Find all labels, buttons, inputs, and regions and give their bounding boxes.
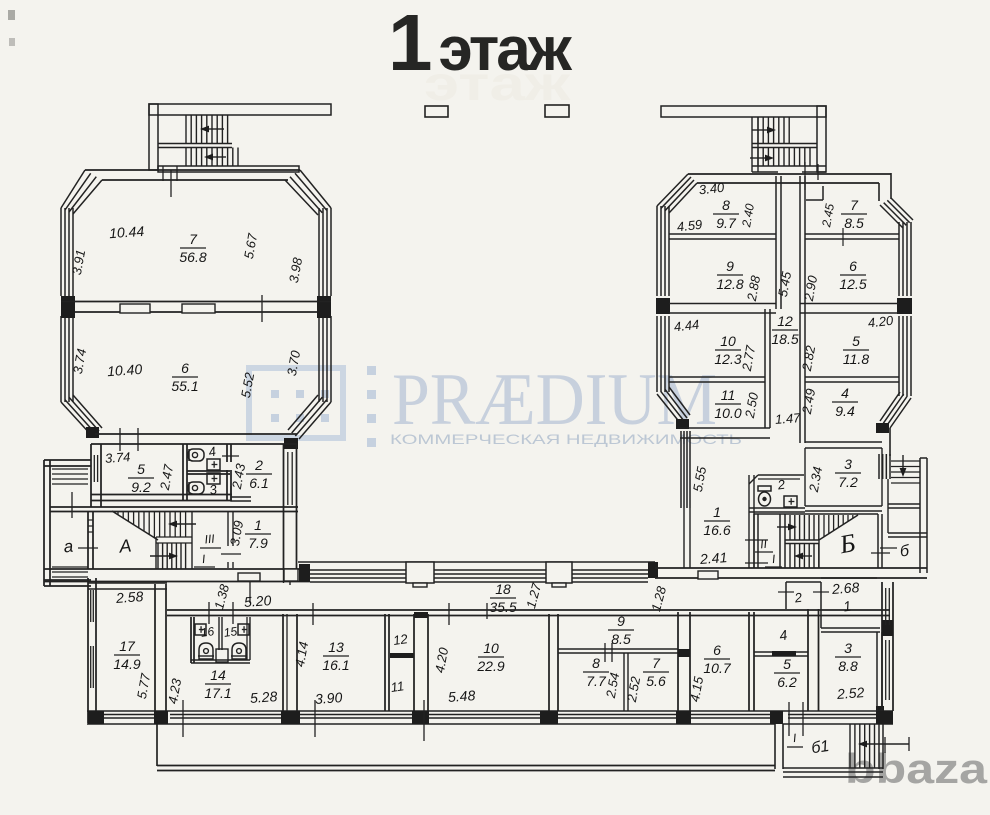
svg-text:1: 1 — [713, 504, 721, 520]
svg-text:4: 4 — [841, 385, 849, 401]
svg-text:1.47: 1.47 — [775, 410, 802, 427]
svg-text:16.6: 16.6 — [703, 522, 730, 538]
svg-text:10: 10 — [720, 333, 736, 349]
svg-text:35.5: 35.5 — [489, 599, 516, 615]
svg-text:55.1: 55.1 — [171, 378, 198, 394]
svg-text:10.7: 10.7 — [703, 660, 731, 676]
svg-text:13: 13 — [328, 639, 344, 655]
svg-text:8: 8 — [592, 655, 600, 671]
svg-text:1: 1 — [254, 517, 262, 533]
svg-text:2.68: 2.68 — [831, 579, 861, 597]
svg-text:6: 6 — [181, 360, 189, 376]
svg-text:18: 18 — [495, 581, 511, 597]
svg-text:7: 7 — [850, 197, 859, 213]
svg-text:12.3: 12.3 — [714, 351, 741, 367]
svg-text:12: 12 — [392, 631, 409, 648]
svg-text:56.8: 56.8 — [179, 249, 206, 265]
svg-text:4.44: 4.44 — [673, 317, 700, 335]
svg-text:9: 9 — [726, 258, 734, 274]
svg-text:8.5: 8.5 — [611, 631, 631, 647]
svg-text:12.5: 12.5 — [839, 276, 866, 292]
svg-text:6.1: 6.1 — [249, 475, 268, 491]
svg-text:9.4: 9.4 — [835, 403, 855, 419]
svg-text:3.74: 3.74 — [105, 449, 131, 466]
svg-text:7: 7 — [652, 655, 661, 671]
svg-text:11: 11 — [721, 387, 736, 403]
svg-text:9: 9 — [617, 613, 625, 629]
svg-text:3.90: 3.90 — [315, 689, 344, 707]
svg-text:2.52: 2.52 — [836, 684, 866, 702]
svg-text:11: 11 — [390, 678, 405, 695]
svg-text:16: 16 — [200, 624, 215, 640]
svg-text:22.9: 22.9 — [476, 658, 504, 674]
svg-text:А: А — [117, 535, 132, 556]
svg-text:5: 5 — [852, 333, 860, 349]
svg-text:16.1: 16.1 — [322, 657, 349, 673]
svg-text:5: 5 — [137, 461, 145, 477]
svg-text:17.1: 17.1 — [204, 685, 231, 701]
svg-text:2.58: 2.58 — [115, 588, 145, 606]
svg-text:7: 7 — [189, 231, 198, 247]
svg-text:8.8: 8.8 — [838, 658, 858, 674]
svg-text:14: 14 — [210, 667, 226, 683]
svg-text:10.0: 10.0 — [714, 405, 741, 421]
svg-text:2.41: 2.41 — [699, 549, 728, 567]
svg-text:этаж: этаж — [424, 58, 571, 111]
svg-text:10.44: 10.44 — [109, 223, 145, 241]
svg-text:3: 3 — [844, 456, 852, 472]
svg-text:4.59: 4.59 — [676, 217, 703, 235]
svg-text:10: 10 — [483, 640, 499, 656]
svg-text:12: 12 — [777, 313, 793, 329]
svg-text:3: 3 — [844, 640, 852, 656]
svg-text:14.9: 14.9 — [113, 656, 140, 672]
svg-text:5.6: 5.6 — [646, 673, 666, 689]
svg-text:15: 15 — [223, 624, 238, 640]
svg-text:10.40: 10.40 — [107, 361, 143, 379]
svg-text:18.5: 18.5 — [771, 331, 798, 347]
svg-text:7.9: 7.9 — [248, 535, 268, 551]
svg-text:12.8: 12.8 — [716, 276, 743, 292]
svg-text:11.8: 11.8 — [843, 351, 869, 367]
svg-text:б1: б1 — [810, 738, 830, 757]
svg-text:6: 6 — [849, 258, 857, 274]
svg-text:5.48: 5.48 — [448, 687, 477, 705]
svg-text:6.2: 6.2 — [777, 674, 797, 690]
svg-text:5.20: 5.20 — [244, 592, 273, 610]
svg-text:17: 17 — [119, 638, 136, 654]
svg-text:КОММЕРЧЕСКАЯ НЕДВИЖИМОСТЬ: КОММЕРЧЕСКАЯ НЕДВИЖИМОСТЬ — [390, 431, 742, 447]
svg-text:7.2: 7.2 — [838, 474, 858, 490]
svg-text:4.20: 4.20 — [867, 313, 894, 331]
svg-text:2: 2 — [254, 457, 263, 473]
svg-text:а: а — [63, 537, 74, 557]
svg-text:8.5: 8.5 — [844, 215, 864, 231]
svg-text:5.28: 5.28 — [250, 688, 279, 706]
svg-text:5: 5 — [783, 656, 791, 672]
svg-text:6: 6 — [713, 642, 721, 658]
svg-text:3.40: 3.40 — [698, 180, 725, 198]
svg-text:9.7: 9.7 — [716, 215, 737, 231]
svg-text:8: 8 — [722, 197, 730, 213]
svg-text:9.2: 9.2 — [131, 479, 151, 495]
